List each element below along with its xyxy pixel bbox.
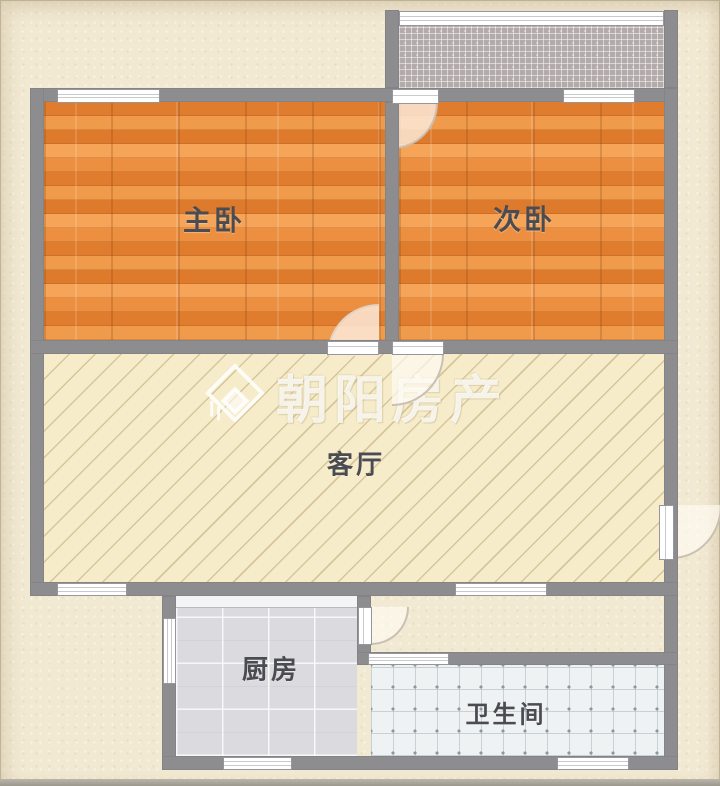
bathroom-label: 卫生间	[466, 695, 547, 730]
master-bedroom-window	[57, 89, 160, 103]
balcony-top-window	[399, 11, 664, 26]
kitchen-door-arc	[371, 607, 409, 645]
kitchen-bottom-window	[223, 757, 292, 770]
bathroom-top-window	[368, 653, 449, 665]
image-bottom-edge	[0, 779, 720, 786]
living-room-label: 客厅	[327, 445, 385, 482]
wall-right	[664, 88, 678, 770]
living-room-window-mid	[455, 583, 547, 596]
wall-between-bedrooms	[385, 102, 399, 354]
kitchen-door	[358, 607, 372, 645]
floor-plan: 朝阳房产 主卧 次卧 客厅 厨房 卫生间	[0, 0, 720, 786]
kitchen-side-window	[163, 618, 176, 684]
wall-balcony-left	[385, 10, 399, 88]
balcony-floor	[399, 25, 664, 88]
wall-balcony-right	[664, 10, 678, 88]
wall-living-bottom	[30, 582, 678, 596]
kitchen-opening	[176, 596, 357, 608]
living-room-window-left	[57, 583, 127, 596]
second-bedroom-label: 次卧	[493, 198, 555, 238]
second-bedroom-door	[392, 341, 444, 355]
master-bedroom-door	[327, 341, 379, 355]
entrance-door-arc	[672, 505, 720, 559]
kitchen-label: 厨房	[242, 650, 300, 687]
entrance-door	[659, 505, 674, 560]
balcony-door	[392, 89, 439, 104]
bathroom-bottom-window	[557, 757, 629, 770]
second-bedroom-window	[563, 89, 635, 103]
master-bedroom-label: 主卧	[183, 199, 245, 239]
